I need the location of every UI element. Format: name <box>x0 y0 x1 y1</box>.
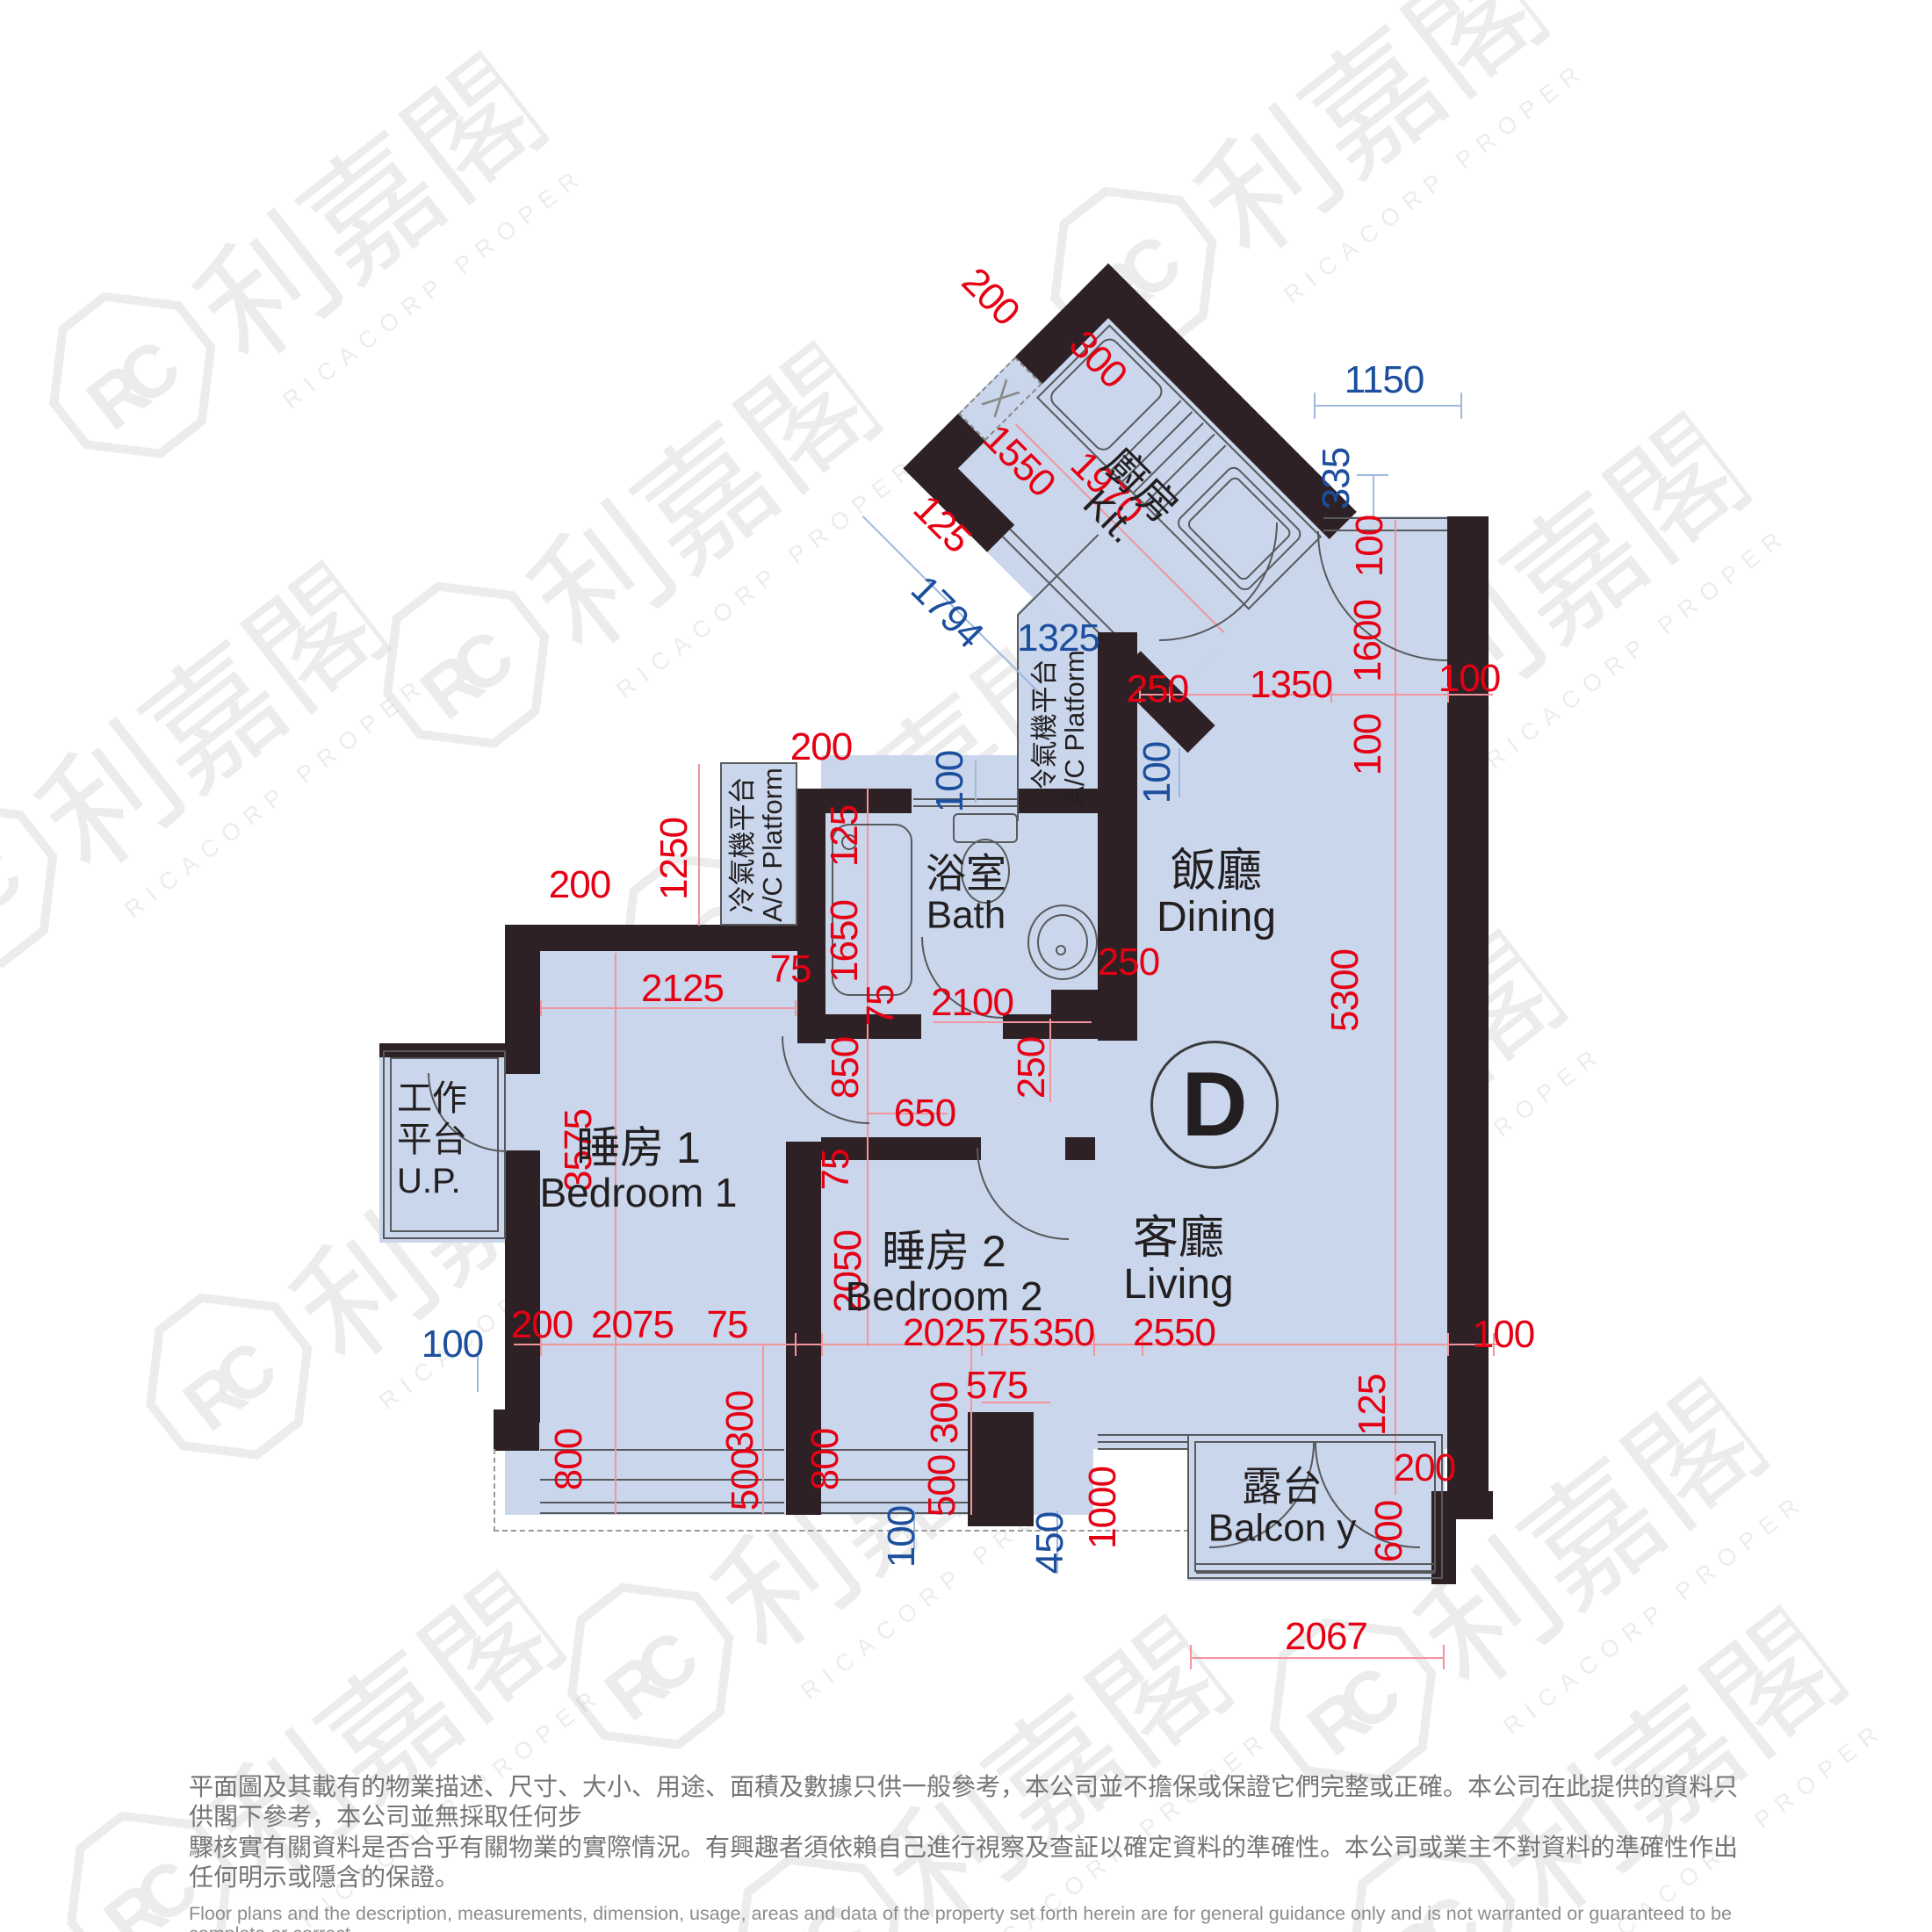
label-utility-platform: 工作平台U.P. <box>397 1078 467 1203</box>
dim-300: 300 <box>718 1391 762 1453</box>
unit-badge: D <box>1150 1041 1279 1169</box>
dim-600: 600 <box>1367 1501 1411 1562</box>
dim-200: 200 <box>790 725 852 769</box>
label-ac-platform-center: 冷氣機平台A/C Platform <box>1030 650 1090 804</box>
dim-800: 800 <box>547 1429 591 1490</box>
wall <box>1065 1137 1095 1160</box>
dimension-line-blue <box>1314 393 1316 419</box>
dim-575: 575 <box>966 1364 1027 1408</box>
window-line <box>1098 1434 1187 1436</box>
dim-100: 100 <box>1473 1313 1534 1357</box>
dim-1794: 1794 <box>902 567 991 657</box>
room-label-bedroom2: 睡房 2Bedroom 2 <box>845 1229 1042 1318</box>
dim-250: 250 <box>1127 667 1188 711</box>
disclaimer-en-line1: Floor plans and the description, measure… <box>189 1904 1761 1932</box>
window-line <box>540 1512 784 1514</box>
label-ac-platform-left: 冷氣機平台A/C Platform <box>728 768 788 922</box>
dim-100: 100 <box>1346 714 1390 775</box>
dim-1600: 1600 <box>1346 600 1390 682</box>
unit-letter: D <box>1181 1053 1247 1157</box>
dim-250: 250 <box>1010 1037 1054 1099</box>
dim-200: 200 <box>1394 1446 1455 1490</box>
dim-200: 200 <box>511 1303 573 1347</box>
dimension-line <box>821 1333 823 1356</box>
dim-800: 800 <box>804 1429 847 1490</box>
wall <box>1003 1014 1137 1039</box>
dimension-line <box>615 953 616 1515</box>
dim-335: 335 <box>1315 448 1359 509</box>
room-label-bath: 浴室Bath <box>926 852 1006 935</box>
wall <box>1051 990 1098 1016</box>
dim-500: 500 <box>920 1455 964 1517</box>
wall <box>968 1412 1034 1526</box>
dim-1000: 1000 <box>1081 1467 1125 1549</box>
dim-75: 75 <box>859 985 903 1027</box>
disclaimer-cn-line1: 平面圖及其載有的物業描述、尺寸、大小、用途、面積及數據只供一般參考，本公司並不擔… <box>189 1772 1761 1833</box>
dimension-line <box>1190 1645 1192 1669</box>
window-line <box>1098 1441 1187 1443</box>
dim-1250: 1250 <box>652 818 696 900</box>
dimension-line <box>795 1333 797 1356</box>
dimension-line-blue <box>1357 474 1388 476</box>
dimension-line <box>1395 520 1396 1495</box>
dim-100: 100 <box>1135 742 1179 804</box>
fixture-ellipse <box>1037 914 1088 970</box>
dim-1650: 1650 <box>823 900 867 983</box>
dimension-line <box>540 1000 542 1016</box>
dim-1350: 1350 <box>1250 663 1332 707</box>
dimension-line <box>1447 1333 1449 1356</box>
room-label-dining: 飯廳Dining <box>1157 847 1276 941</box>
dim-5300: 5300 <box>1323 949 1367 1032</box>
dim-125: 125 <box>1351 1374 1395 1436</box>
floor-plan: ╳20030015501970125廚房Kit.1150335100160010… <box>0 0 1932 1932</box>
dim-850: 850 <box>824 1037 868 1099</box>
dim-100: 100 <box>880 1506 924 1568</box>
dim-450: 450 <box>1028 1512 1072 1574</box>
dimension-line-blue <box>1373 475 1374 519</box>
dim-75: 75 <box>707 1303 748 1347</box>
disclaimer-cn-line2: 驟核實有關資料是否合乎有關物業的實際情況。有興趣者須依賴自己進行視察及查証以確定… <box>189 1833 1761 1893</box>
dim-1150: 1150 <box>1344 358 1424 402</box>
dim-100: 100 <box>422 1323 483 1366</box>
disclaimer: 平面圖及其載有的物業描述、尺寸、大小、用途、面積及數據只供一般參考，本公司並不擔… <box>189 1772 1761 1932</box>
dimension-line <box>1443 1645 1445 1669</box>
dimension-line <box>698 764 700 926</box>
dim-125: 125 <box>823 805 867 867</box>
dimension-line-blue <box>975 761 977 803</box>
floor-area <box>505 925 821 1515</box>
dim-75: 75 <box>770 948 811 991</box>
dim-300: 300 <box>923 1382 967 1444</box>
dim-2550: 2550 <box>1133 1311 1215 1355</box>
dim-2100: 2100 <box>931 981 1013 1025</box>
dim-500: 500 <box>724 1449 768 1510</box>
dim-100: 100 <box>1348 515 1392 577</box>
dimension-line <box>795 1000 797 1016</box>
dim-2067: 2067 <box>1285 1615 1367 1659</box>
dimension-line-blue <box>1314 405 1461 407</box>
dim-650: 650 <box>894 1092 955 1135</box>
window-line <box>1098 1448 1187 1450</box>
dim-100: 100 <box>928 751 972 812</box>
room-label-living: 客廳Living <box>1123 1215 1233 1308</box>
dim-250: 250 <box>1098 941 1159 984</box>
dim-2125: 2125 <box>641 967 724 1011</box>
dim-200: 200 <box>953 260 1027 335</box>
dim-2075: 2075 <box>591 1303 674 1347</box>
dim-100: 100 <box>1438 657 1500 701</box>
dimension-line-blue <box>1460 393 1462 419</box>
dim-200: 200 <box>549 863 610 907</box>
room-label-bedroom1: 睡房 1Bedroom 1 <box>539 1125 737 1215</box>
wall <box>494 1409 539 1451</box>
room-label-balcony: 露台Balcon y <box>1208 1465 1357 1548</box>
wall <box>505 1150 540 1423</box>
dim-75: 75 <box>814 1150 858 1191</box>
fixture-ellipse <box>1056 945 1066 955</box>
floor-plan-canvas: RC利嘉閣RICACORP PROPERTIESRC利嘉閣RICACORP PR… <box>0 0 1932 1932</box>
dashed-boundary <box>494 1449 495 1532</box>
wall <box>505 925 540 1074</box>
